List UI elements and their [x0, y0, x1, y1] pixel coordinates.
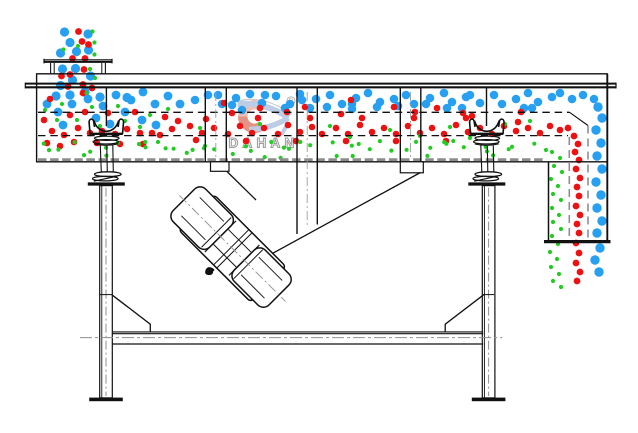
svg-text:DAHAN: DAHAN — [229, 135, 297, 150]
